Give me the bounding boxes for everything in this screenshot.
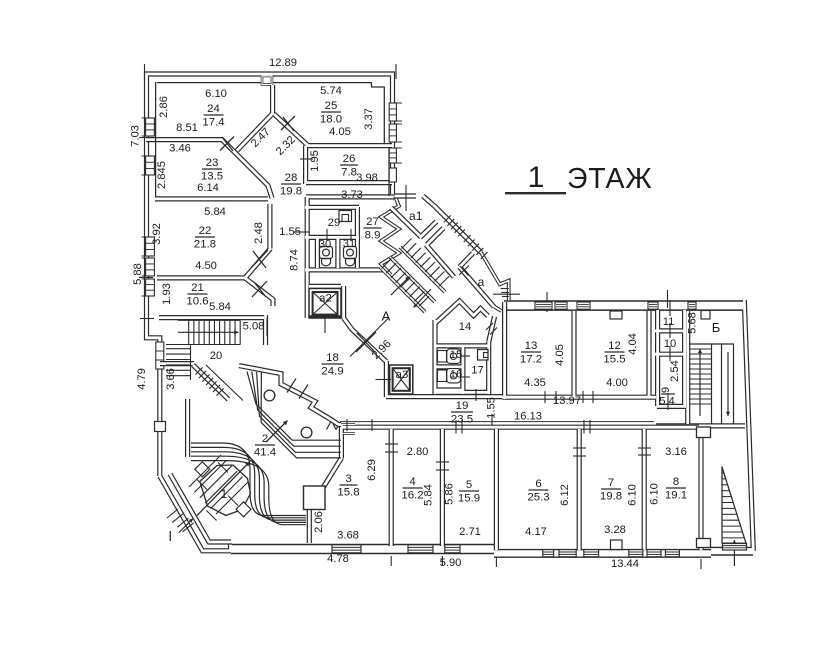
svg-text:14: 14 [459, 321, 471, 333]
svg-text:2.54: 2.54 [669, 360, 681, 382]
svg-text:Б: Б [712, 320, 721, 335]
svg-text:4: 4 [409, 476, 415, 488]
svg-text:ЭТАЖ: ЭТАЖ [567, 163, 652, 195]
svg-text:8.9: 8.9 [365, 230, 381, 242]
svg-text:31: 31 [343, 238, 355, 250]
svg-text:А: А [382, 309, 391, 324]
svg-text:4.78: 4.78 [327, 553, 349, 565]
svg-text:13.44: 13.44 [611, 558, 639, 570]
svg-text:5.86: 5.86 [444, 483, 456, 505]
svg-text:8: 8 [673, 476, 679, 488]
svg-text:3.16: 3.16 [665, 446, 687, 458]
svg-text:19: 19 [456, 400, 469, 412]
svg-text:5.84: 5.84 [209, 301, 231, 313]
svg-text:5.68: 5.68 [687, 312, 699, 334]
svg-text:4.05: 4.05 [329, 126, 351, 138]
svg-text:4.04: 4.04 [627, 333, 639, 355]
svg-text:6.10: 6.10 [205, 88, 227, 100]
svg-text:12: 12 [608, 340, 621, 352]
svg-text:6.10: 6.10 [627, 484, 639, 506]
svg-text:3.98: 3.98 [356, 172, 378, 184]
svg-text:23.5: 23.5 [451, 414, 473, 426]
svg-text:7.03: 7.03 [130, 125, 142, 147]
svg-text:30: 30 [319, 239, 331, 251]
svg-text:3.68: 3.68 [337, 530, 359, 542]
svg-text:8.74: 8.74 [289, 249, 301, 271]
svg-text:а3: а3 [396, 369, 409, 381]
svg-text:6.12: 6.12 [559, 484, 571, 506]
svg-text:13: 13 [525, 340, 538, 352]
svg-text:13.5: 13.5 [201, 171, 223, 183]
svg-text:2.71: 2.71 [459, 526, 481, 538]
svg-text:7: 7 [608, 477, 614, 489]
svg-text:17.4: 17.4 [202, 117, 224, 129]
svg-text:4.17: 4.17 [525, 526, 547, 538]
svg-text:22: 22 [199, 225, 212, 237]
svg-text:5.90: 5.90 [440, 557, 462, 569]
svg-text:27: 27 [366, 216, 379, 228]
svg-text:18.0: 18.0 [320, 114, 342, 126]
svg-text:19.8: 19.8 [280, 186, 302, 198]
svg-text:15: 15 [450, 349, 462, 361]
svg-text:23: 23 [206, 157, 219, 169]
svg-text:10.6: 10.6 [186, 296, 208, 308]
svg-text:24.9: 24.9 [321, 366, 343, 378]
svg-text:5.4: 5.4 [659, 396, 675, 408]
svg-text:28: 28 [285, 172, 298, 184]
svg-text:29: 29 [328, 217, 340, 229]
svg-text:а2: а2 [319, 293, 332, 305]
svg-text:15.9: 15.9 [458, 493, 480, 505]
svg-text:2.06: 2.06 [313, 511, 325, 533]
svg-text:3.92: 3.92 [151, 223, 163, 245]
svg-text:19.1: 19.1 [665, 490, 687, 502]
svg-text:5.84: 5.84 [204, 206, 226, 218]
svg-text:11: 11 [663, 316, 675, 328]
svg-text:2.86: 2.86 [158, 96, 170, 118]
svg-text:19.8: 19.8 [600, 491, 622, 503]
svg-text:15.5: 15.5 [603, 354, 625, 366]
svg-text:а1: а1 [409, 209, 423, 223]
svg-text:16.2: 16.2 [401, 490, 423, 502]
svg-text:3.66: 3.66 [165, 368, 177, 390]
svg-text:5: 5 [466, 479, 472, 491]
svg-text:16: 16 [450, 369, 462, 381]
svg-text:15.8: 15.8 [337, 487, 359, 499]
svg-text:25: 25 [325, 100, 338, 112]
svg-text:1.55: 1.55 [279, 226, 301, 238]
svg-text:а: а [478, 275, 485, 289]
svg-text:7.8: 7.8 [341, 167, 357, 179]
svg-text:20: 20 [210, 350, 222, 362]
svg-text:3.46: 3.46 [169, 143, 191, 155]
svg-text:1: 1 [528, 161, 545, 194]
svg-text:2.80: 2.80 [407, 446, 429, 458]
svg-text:13.97: 13.97 [553, 395, 581, 407]
svg-text:9: 9 [660, 387, 672, 393]
svg-text:1.55: 1.55 [486, 397, 498, 419]
svg-text:6: 6 [535, 478, 541, 490]
svg-text:5.88: 5.88 [132, 263, 144, 285]
svg-text:3.37: 3.37 [363, 108, 375, 130]
svg-text:3.28: 3.28 [604, 524, 626, 536]
svg-text:3: 3 [345, 473, 351, 485]
svg-text:1.93: 1.93 [161, 283, 173, 305]
svg-text:4.50: 4.50 [195, 260, 217, 272]
svg-text:10: 10 [664, 338, 676, 350]
svg-text:18: 18 [326, 352, 339, 364]
svg-text:26: 26 [343, 153, 356, 165]
svg-text:4.35: 4.35 [524, 377, 546, 389]
svg-text:8.51: 8.51 [176, 122, 198, 134]
svg-text:2.845: 2.845 [156, 161, 168, 189]
svg-text:1: 1 [221, 487, 228, 501]
svg-text:12.89: 12.89 [269, 57, 297, 69]
svg-text:21: 21 [191, 282, 204, 294]
svg-text:41.4: 41.4 [254, 447, 276, 459]
svg-text:2.48: 2.48 [253, 222, 265, 244]
svg-text:21.8: 21.8 [194, 239, 216, 251]
svg-text:5.08: 5.08 [243, 321, 265, 333]
svg-text:6.14: 6.14 [197, 182, 219, 194]
svg-text:17.2: 17.2 [520, 354, 542, 366]
svg-text:4.05: 4.05 [554, 344, 566, 366]
svg-text:25.3: 25.3 [527, 492, 549, 504]
svg-text:4.00: 4.00 [606, 377, 628, 389]
svg-text:4.79: 4.79 [136, 368, 148, 390]
svg-text:6.29: 6.29 [366, 459, 378, 481]
svg-text:5.74: 5.74 [320, 85, 342, 97]
svg-text:5.84: 5.84 [423, 484, 435, 506]
svg-text:2: 2 [262, 433, 268, 445]
svg-text:6.10: 6.10 [649, 483, 661, 505]
svg-text:3.73: 3.73 [341, 189, 363, 201]
svg-text:24: 24 [207, 103, 220, 115]
svg-text:16.13: 16.13 [514, 411, 542, 423]
svg-text:17: 17 [471, 365, 483, 377]
svg-text:1.95: 1.95 [309, 150, 321, 172]
